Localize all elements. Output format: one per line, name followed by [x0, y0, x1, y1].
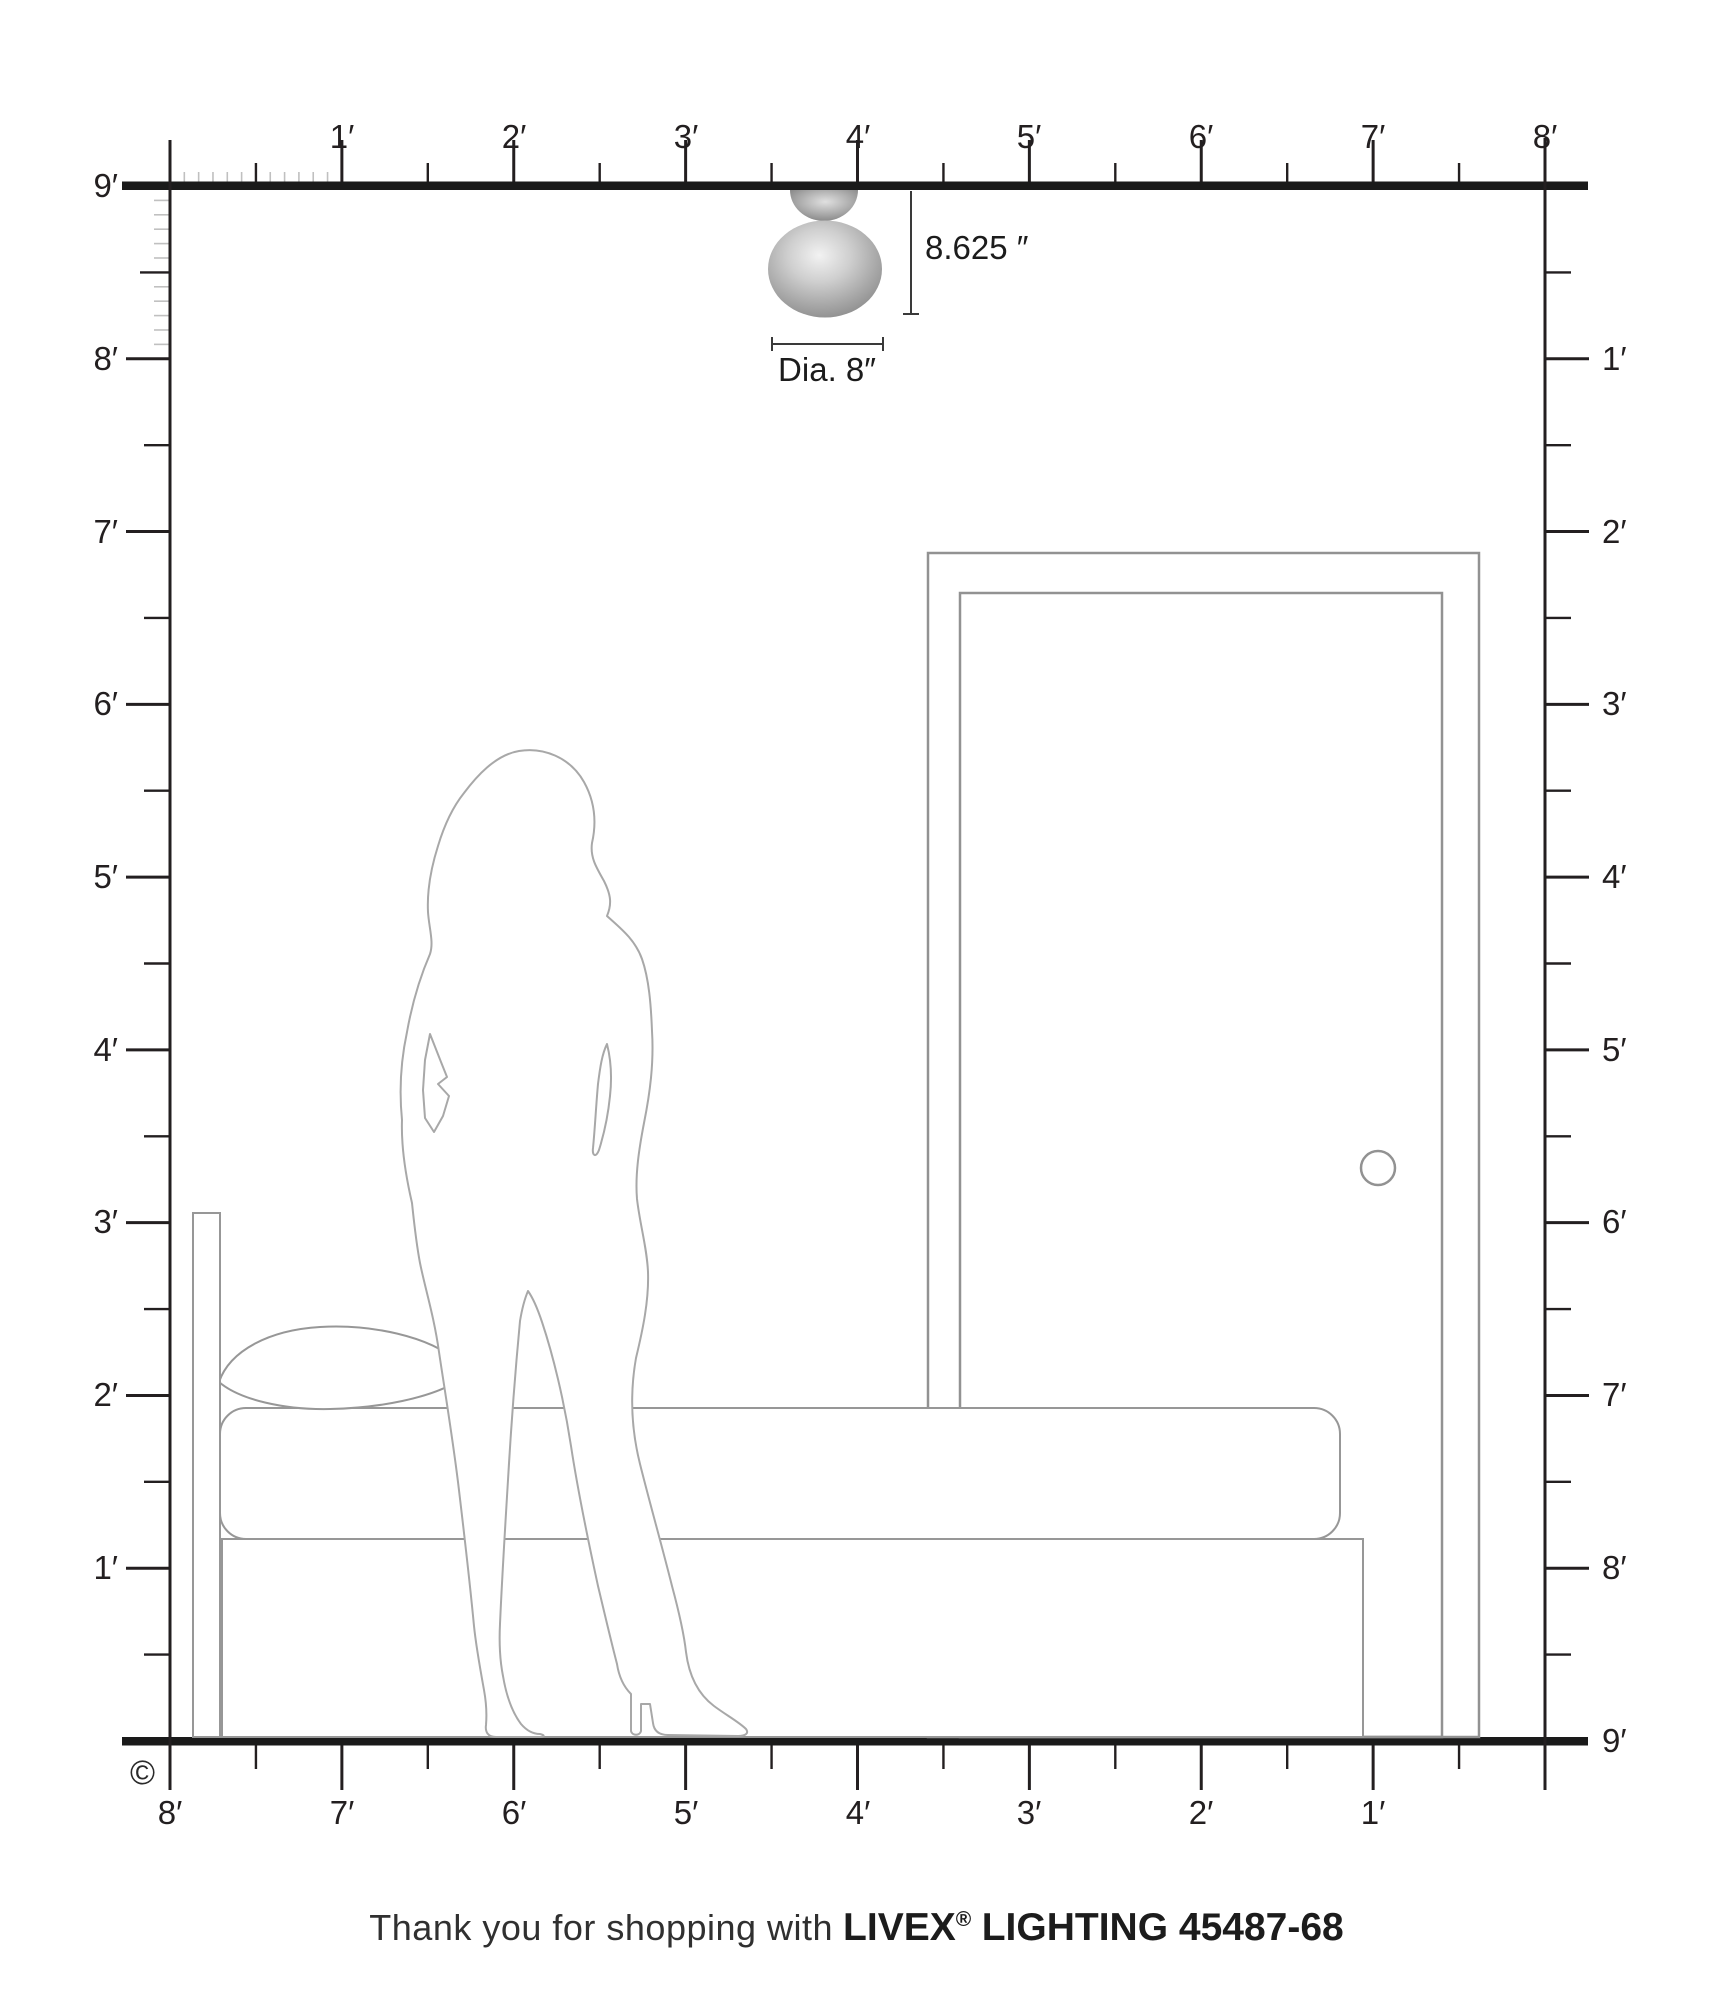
ruler-label-bottom-1ft: 1′	[1361, 1794, 1386, 1831]
ruler-label-left-7ft: 7′	[93, 513, 118, 550]
headboard-post	[193, 1213, 220, 1737]
bed-base	[222, 1539, 1363, 1737]
footer-caption-prefix: Thank you for shopping with	[369, 1907, 833, 1948]
ruler-label-left-6ft: 6′	[93, 685, 118, 722]
ruler-label-bottom-2ft: 2′	[1189, 1794, 1214, 1831]
scale-diagram: 8.625 ″ Dia. 8″ 1′ 2′ 3′ 4′ 5′ 6′ 7′ 8′ …	[0, 0, 1713, 2000]
ruler-label-bottom-3ft: 3′	[1017, 1794, 1042, 1831]
ruler-label-right-9ft: 9′	[1602, 1722, 1627, 1759]
flush-mount-light	[768, 190, 882, 318]
ruler-label-bottom-4ft: 4′	[846, 1794, 871, 1831]
ruler-label-right-3ft: 3′	[1602, 685, 1627, 722]
ruler-label-bottom-7ft: 7′	[330, 1794, 355, 1831]
fixture-canopy-dome	[790, 190, 858, 221]
ruler-label-bottom-6ft: 6′	[502, 1794, 527, 1831]
scene-svg: 8.625 ″ Dia. 8″ 1′ 2′ 3′ 4′ 5′ 6′ 7′ 8′ …	[0, 0, 1713, 2000]
ruler-label-top-2ft: 2′	[502, 118, 527, 155]
ruler-label-left-9ft: 9′	[93, 167, 118, 204]
ruler-label-right-5ft: 5′	[1602, 1031, 1627, 1068]
footer-caption-suffix: LIGHTING 45487-68	[982, 1906, 1344, 1949]
ruler-label-bottom-5ft: 5′	[674, 1794, 699, 1831]
registered-trademark-icon: ®	[956, 1908, 972, 1931]
mattress	[220, 1408, 1340, 1539]
ruler-label-left-5ft: 5′	[93, 858, 118, 895]
ruler-label-left-8ft: 8′	[93, 340, 118, 377]
pillow	[219, 1327, 463, 1410]
brand-name: LIVEX	[843, 1906, 956, 1949]
ruler-label-top-3ft: 3′	[674, 118, 699, 155]
ruler-label-bottom-8ft: 8′	[158, 1794, 183, 1831]
ruler-label-top-1ft: 1′	[330, 118, 355, 155]
floor-line	[122, 1737, 1588, 1746]
ruler-label-right-7ft: 7′	[1602, 1376, 1627, 1413]
ruler-label-left-3ft: 3′	[93, 1203, 118, 1240]
ruler-label-right-6ft: 6′	[1602, 1203, 1627, 1240]
ruler-label-right-1ft: 1′	[1602, 340, 1627, 377]
fixture-height-label: 8.625 ″	[925, 229, 1029, 266]
footer-caption: Thank you for shopping withLIVEX®LIGHTIN…	[0, 1906, 1713, 1950]
ruler-label-right-8ft: 8′	[1602, 1549, 1627, 1586]
door-knob	[1361, 1151, 1395, 1185]
ruler-label-right-4ft: 4′	[1602, 858, 1627, 895]
ceiling-line	[122, 182, 1588, 191]
ruler-label-top-6ft: 6′	[1189, 118, 1214, 155]
fixture-diameter-label: Dia. 8″	[778, 351, 876, 388]
ruler-label-left-4ft: 4′	[93, 1031, 118, 1068]
fixture-globe	[768, 221, 882, 318]
ruler-label-top-8ft: 8′	[1533, 118, 1558, 155]
ruler-label-left-1ft: 1′	[93, 1549, 118, 1586]
ruler-label-right-2ft: 2′	[1602, 513, 1627, 550]
ruler-label-left-2ft: 2′	[93, 1376, 118, 1413]
ruler-label-top-7ft: 7′	[1361, 118, 1386, 155]
bed	[193, 1213, 1363, 1737]
ruler-label-top-4ft: 4′	[846, 118, 871, 155]
ruler-label-top-5ft: 5′	[1017, 118, 1042, 155]
copyright-symbol: ©	[130, 1754, 155, 1792]
